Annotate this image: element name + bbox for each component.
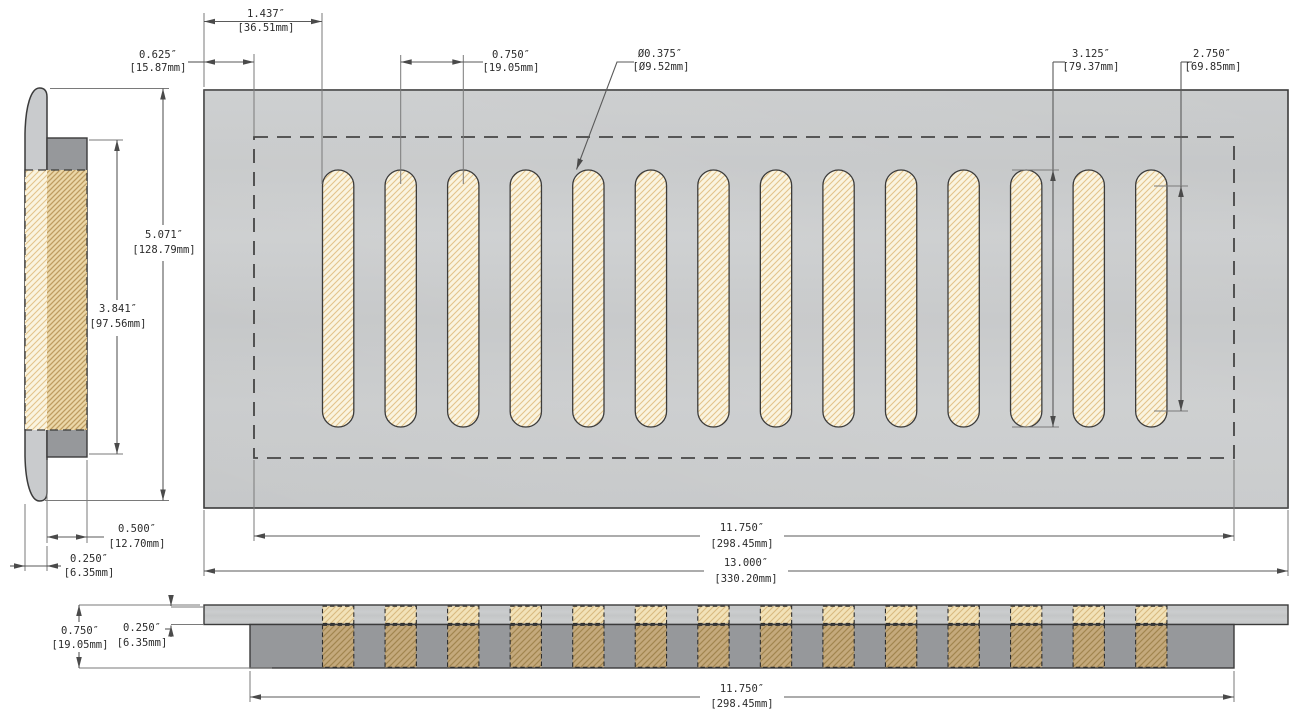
slot-section-top [948,606,979,623]
slot-section-bottom [1136,625,1167,667]
dim-label-mm: [15.87mm] [130,62,187,74]
dim-label: 1.437″ [247,8,285,20]
dim-label-mm: [298.45mm] [710,538,773,550]
dim-label-mm: [69.85mm] [1185,61,1242,73]
dim-opening-height: 3.841″ [97.56mm] [89,140,146,454]
slot-section-top [448,606,479,623]
dim-label: 0.500″ [118,523,156,535]
dim-label: 0.750″ [61,625,99,637]
dim-label-mm: [19.05mm] [52,639,109,651]
slot-section-top [573,606,604,623]
faceplate-front-section [204,605,1288,625]
dim-label-mm: [79.37mm] [1063,61,1120,73]
slot-section-bottom [573,625,604,667]
dim-flange-depth: 0.500″ [12.70mm] [47,460,165,550]
vent-slot [885,170,916,427]
vent-slot [635,170,666,427]
slot-section-top [1011,606,1042,623]
slot-section-bottom [948,625,979,667]
slot-section-bottom [885,625,916,667]
dim-label-mm: [Ø9.52mm] [633,61,690,73]
vent-slot [948,170,979,427]
dim-label: 0.750″ [492,49,530,61]
slot-section-top [1073,606,1104,623]
slot-section-top [698,606,729,623]
slot-section-top [635,606,666,623]
faceplate-sheen [204,90,1288,508]
dim-opening-width-front: 11.750″ [298.45mm] [250,671,1234,710]
slot-section-top [1136,606,1167,623]
slot-section-bottom [323,625,354,667]
dim-label-mm: [19.05mm] [483,62,540,74]
vent-slot [823,170,854,427]
slot-section-bottom [698,625,729,667]
side-profile-view: 5.071″ [128.79mm] 3.841″ [97.56mm] 0.500… [10,88,196,579]
slot-section-bottom [448,625,479,667]
dim-label: 3.841″ [99,303,137,315]
slot-section-bottom [635,625,666,667]
vent-cover-technical-drawing: 1.437″ [36.51mm] 0.625″ [15.87mm] 0.750″… [0,0,1308,725]
vent-slot [1136,170,1167,427]
vent-slot [760,170,791,427]
dim-label-mm: [12.70mm] [109,538,166,550]
dim-label: 0.625″ [139,49,177,61]
dim-label: 0.250″ [123,622,161,634]
dim-plate-thickness-front: 0.250″ [6.35mm] [117,595,203,649]
vent-slot [510,170,541,427]
dim-label: 13.000″ [724,557,768,569]
slot-section-bottom [760,625,791,667]
vent-slot [1073,170,1104,427]
dim-label-mm: [6.35mm] [64,567,115,579]
slot-section-top [323,606,354,623]
slot-section-top [385,606,416,623]
vent-slot [323,170,354,427]
dim-label-mm: [128.79mm] [132,244,195,256]
collar-section-hatch [47,170,87,430]
dim-label: 3.125″ [1072,48,1110,60]
dim-label: 5.071″ [145,229,183,241]
vent-slot [573,170,604,427]
dim-label: 0.250″ [70,553,108,565]
top-plan-view: 1.437″ [36.51mm] 0.625″ [15.87mm] 0.750″… [130,8,1288,585]
slot-section-bottom [1011,625,1042,667]
slot-section-top [510,606,541,623]
vent-slot [448,170,479,427]
dim-label-mm: [6.35mm] [117,637,168,649]
drawing-canvas: 1.437″ [36.51mm] 0.625″ [15.87mm] 0.750″… [0,0,1308,725]
dim-label: 11.750″ [720,683,764,695]
dim-label-mm: [298.45mm] [710,698,773,710]
slot-section-top [823,606,854,623]
dim-label: 11.750″ [720,522,764,534]
faceplate-section-hatch [25,170,47,430]
front-section-view: 0.750″ [19.05mm] 0.250″ [6.35mm] 11.750″… [50,595,1288,710]
vent-slot [385,170,416,427]
dim-label-mm: [36.51mm] [238,22,295,34]
slot-section-bottom [510,625,541,667]
slot-section-top [885,606,916,623]
slot-section-bottom [823,625,854,667]
dim-label-mm: [330.20mm] [714,573,777,585]
slot-section-bottom [1073,625,1104,667]
dim-label: 2.750″ [1193,48,1231,60]
dim-faceplate-thickness: 0.250″ [6.35mm] [10,504,114,579]
dim-label-mm: [97.56mm] [90,318,147,330]
vent-slot [698,170,729,427]
vent-slot [1011,170,1042,427]
dim-label: Ø0.375″ [638,48,682,60]
slot-section-top [760,606,791,623]
slot-section-bottom [385,625,416,667]
